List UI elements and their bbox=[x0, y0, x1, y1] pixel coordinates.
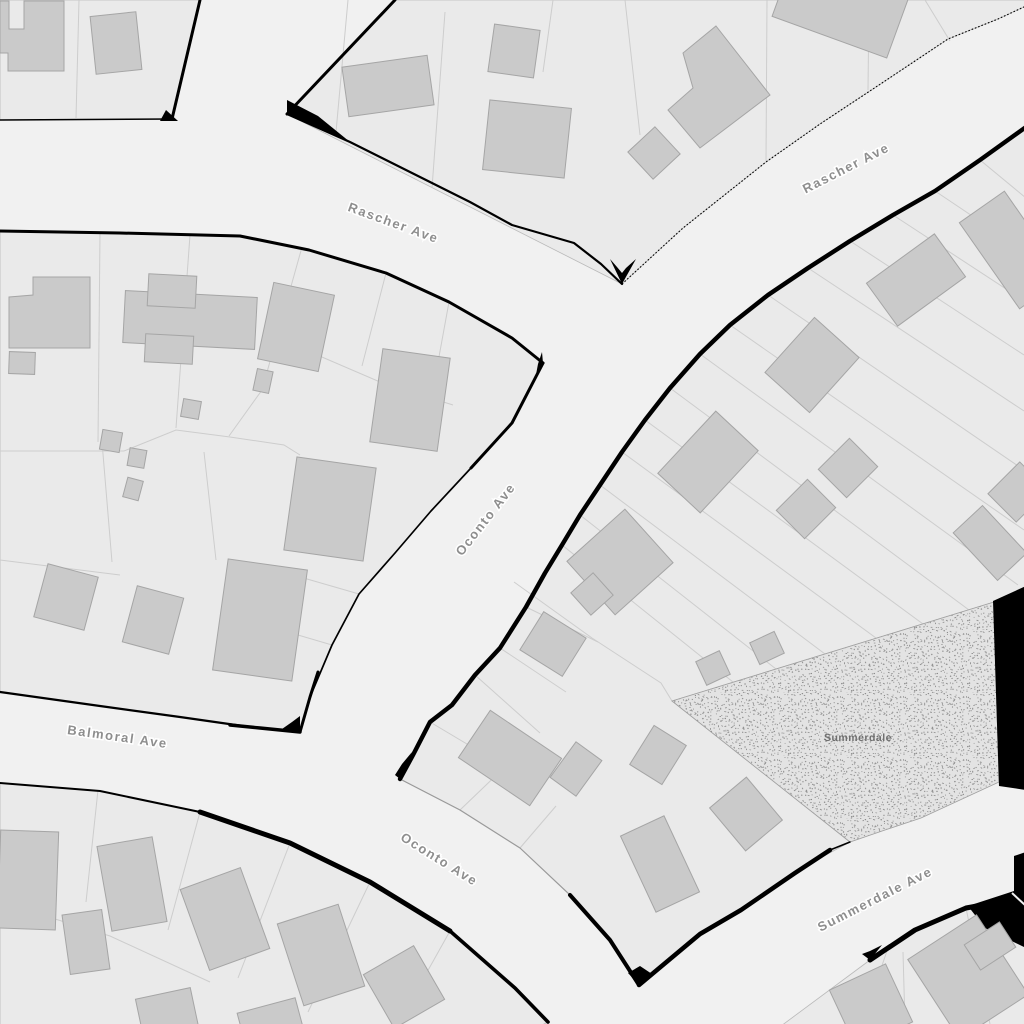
svg-text:Summerdale: Summerdale bbox=[824, 732, 892, 744]
